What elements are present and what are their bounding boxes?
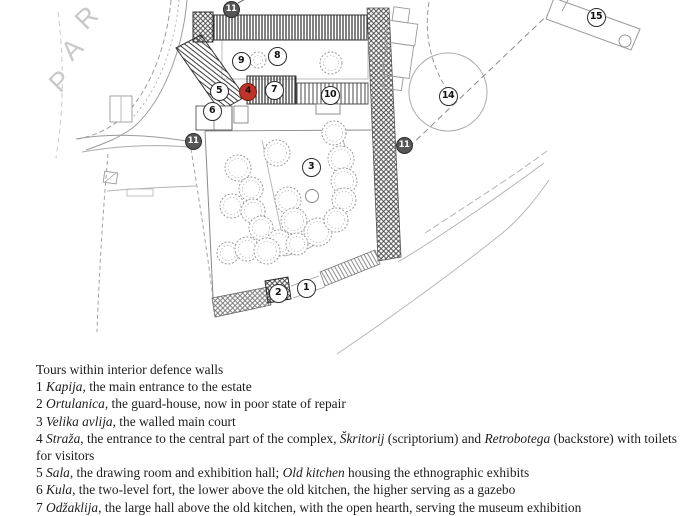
map-marker-8: 8 <box>268 47 287 66</box>
map-marker-7: 7 <box>265 81 284 100</box>
map-marker-2: 2 <box>269 284 288 303</box>
site-plan: P A R <box>0 0 700 358</box>
map-marker-6: 6 <box>203 102 222 121</box>
legend-entry-5: 5 Sala, the drawing room and exhibition … <box>36 464 692 481</box>
map-marker-4: 4 <box>239 83 257 101</box>
map-marker-11: 11 <box>185 133 202 150</box>
map-marker-11: 11 <box>396 137 413 154</box>
map-marker-10: 10 <box>321 86 340 105</box>
map-marker-15: 15 <box>587 8 606 27</box>
map-marker-11: 11 <box>223 1 240 18</box>
legend-title: Tours within interior defence walls <box>36 361 692 378</box>
legend-entry-3: 3 Velika avlija, the walled main court <box>36 413 692 430</box>
legend-entry-6: 6 Kula, the two-level fort, the lower ab… <box>36 481 692 498</box>
legend-entry-1: 1 Kapija, the main entrance to the estat… <box>36 378 692 395</box>
map-marker-9: 9 <box>232 52 251 71</box>
map-marker-14: 14 <box>439 87 458 106</box>
map-marker-5: 5 <box>210 82 229 101</box>
page: { "map": { "par_letters": ["P", "A", "R"… <box>0 0 700 500</box>
marker-layer: 111598547106111114321 <box>0 0 700 358</box>
legend-entry-2: 2 Ortulanica, the guard-house, now in po… <box>36 395 692 412</box>
map-marker-1: 1 <box>297 279 316 298</box>
map-marker-3: 3 <box>302 158 321 177</box>
legend-entry-4: 4 Straža, the entrance to the central pa… <box>36 430 692 464</box>
legend: Tours within interior defence walls 1 Ka… <box>36 361 692 516</box>
legend-entry-7: 7 Odžaklija, the large hall above the ol… <box>36 499 692 516</box>
